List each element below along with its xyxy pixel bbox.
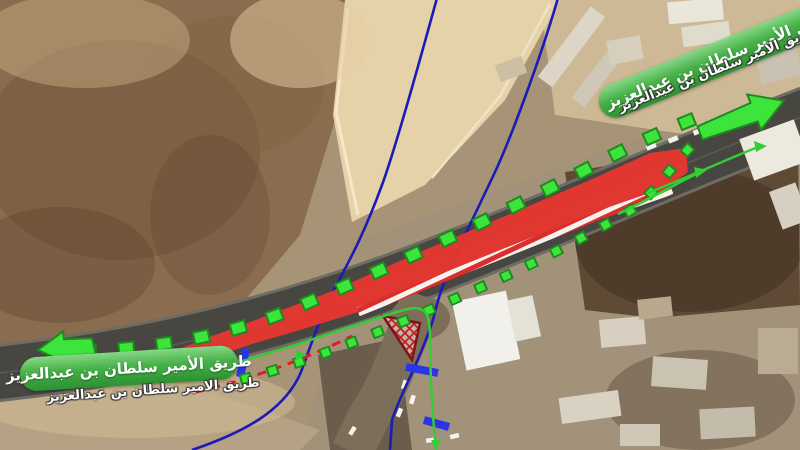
satellite-map-view[interactable]: طريق الأمير سلطان بن عبدالعزيز طريق الام… [0, 0, 800, 450]
